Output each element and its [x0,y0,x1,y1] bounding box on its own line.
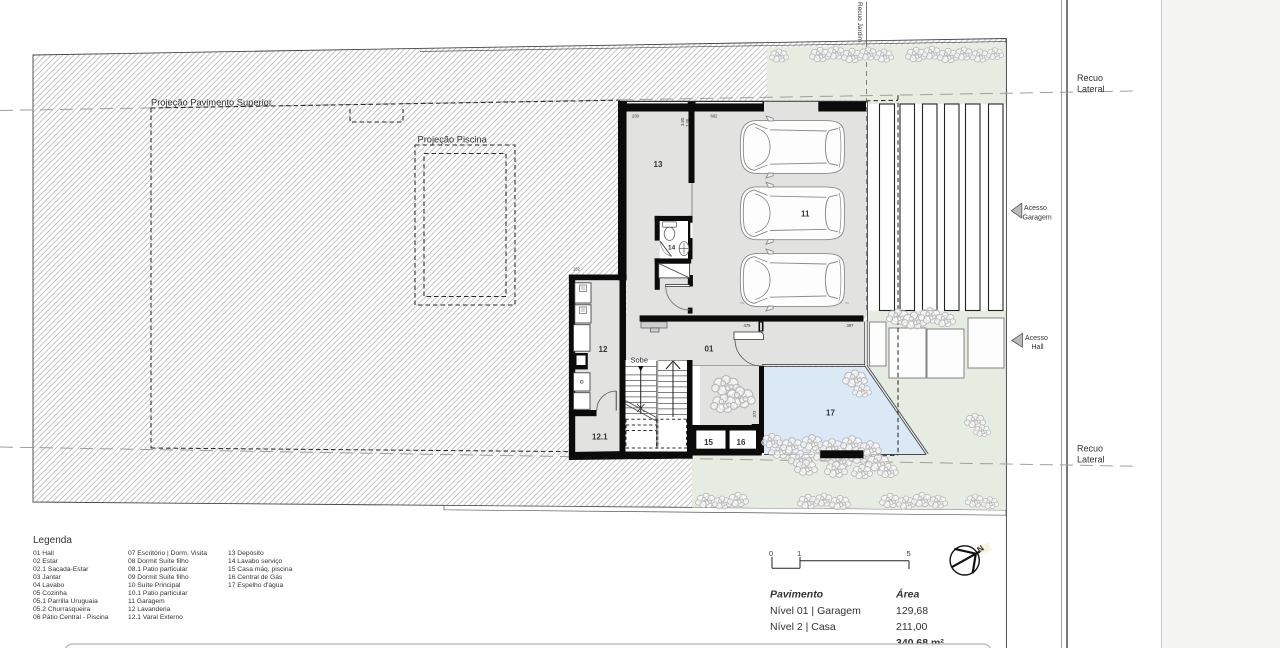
svg-text:12: 12 [599,345,608,354]
svg-text:162: 162 [573,267,581,272]
svg-text:0: 0 [769,549,773,558]
svg-text:03 Jantar: 03 Jantar [33,574,62,581]
svg-text:17: 17 [826,409,835,418]
svg-text:397: 397 [847,323,855,328]
svg-text:7.30: 7.30 [685,118,690,127]
svg-text:08 Dormit Suíte filho: 08 Dormit Suíte filho [128,558,189,565]
svg-text:230: 230 [632,114,640,119]
svg-text:12.1: 12.1 [592,433,608,442]
svg-text:17 Espelho d'água: 17 Espelho d'água [228,582,283,589]
svg-text:07 Escritório | Dorm. Visita: 07 Escritório | Dorm. Visita [128,550,207,557]
svg-text:02 Estar: 02 Estar [33,558,59,565]
svg-text:Legenda: Legenda [33,535,72,546]
svg-text:211,00: 211,00 [896,621,927,633]
svg-text:06 Pátio Central - Piscina: 06 Pátio Central - Piscina [33,614,109,621]
svg-text:11 Garagem: 11 Garagem [128,598,165,605]
svg-text:1: 1 [797,549,801,558]
svg-text:05.1 Parrilla Uruguaia: 05.1 Parrilla Uruguaia [33,598,98,605]
svg-text:02.1 Sacada-Estar: 02.1 Sacada-Estar [33,566,89,573]
svg-text:Área: Área [895,588,920,601]
svg-text:Nível 01 | Garagem: Nível 01 | Garagem [770,605,861,617]
svg-text:08.1 Patio particular: 08.1 Patio particular [128,566,188,573]
svg-text:01: 01 [705,345,714,354]
svg-text:129,68: 129,68 [896,605,928,617]
svg-text:479: 479 [744,323,752,328]
svg-text:13 Depósito: 13 Depósito [228,550,264,557]
svg-text:Pavimento: Pavimento [770,589,824,601]
svg-text:Acesso: Acesso [1024,205,1047,212]
svg-text:10 Suíte Principal: 10 Suíte Principal [128,582,181,589]
svg-text:372: 372 [752,410,757,418]
svg-text:09 Dormit Suíte filho: 09 Dormit Suíte filho [128,574,189,581]
svg-text:Projeção Pavimento Superior: Projeção Pavimento Superior [151,98,272,108]
svg-text:Projeção Piscina: Projeção Piscina [418,135,488,145]
svg-text:13: 13 [654,160,663,169]
svg-text:Hall: Hall [1032,344,1045,351]
svg-text:Recuo: Recuo [1077,73,1103,83]
svg-text:12.1 Varal Externo: 12.1 Varal Externo [128,614,183,621]
svg-text:Recuo Jardim: Recuo Jardim [856,2,863,42]
svg-text:11: 11 [801,210,810,219]
svg-text:Lateral: Lateral [1077,84,1105,94]
svg-text:14 Lavabo serviço: 14 Lavabo serviço [228,558,283,565]
svg-text:Sobe: Sobe [631,356,649,365]
svg-text:Acesso: Acesso [1025,335,1048,342]
svg-text:Lateral: Lateral [1077,455,1105,465]
svg-text:Garagem: Garagem [1023,215,1052,222]
svg-text:12 Lavanderia: 12 Lavanderia [128,606,171,613]
svg-text:15 Casa máq. piscina: 15 Casa máq. piscina [228,566,293,573]
svg-text:Nível 2 | Casa: Nível 2 | Casa [770,621,836,633]
svg-text:05.2 Churrasqueira: 05.2 Churrasqueira [33,606,91,613]
svg-text:04 Lavabo: 04 Lavabo [33,582,65,589]
svg-text:14: 14 [668,245,676,252]
svg-text:16: 16 [737,438,746,447]
svg-text:5: 5 [907,549,911,558]
svg-text:602: 602 [711,114,719,119]
svg-text:16 Central de Gás: 16 Central de Gás [228,574,283,581]
svg-text:15: 15 [704,438,713,447]
svg-text:01 Hall: 01 Hall [33,550,54,557]
svg-text:10.1 Patio particular: 10.1 Patio particular [128,590,188,597]
svg-text:Recuo: Recuo [1077,444,1103,454]
svg-text:05 Cozinha: 05 Cozinha [33,590,67,597]
